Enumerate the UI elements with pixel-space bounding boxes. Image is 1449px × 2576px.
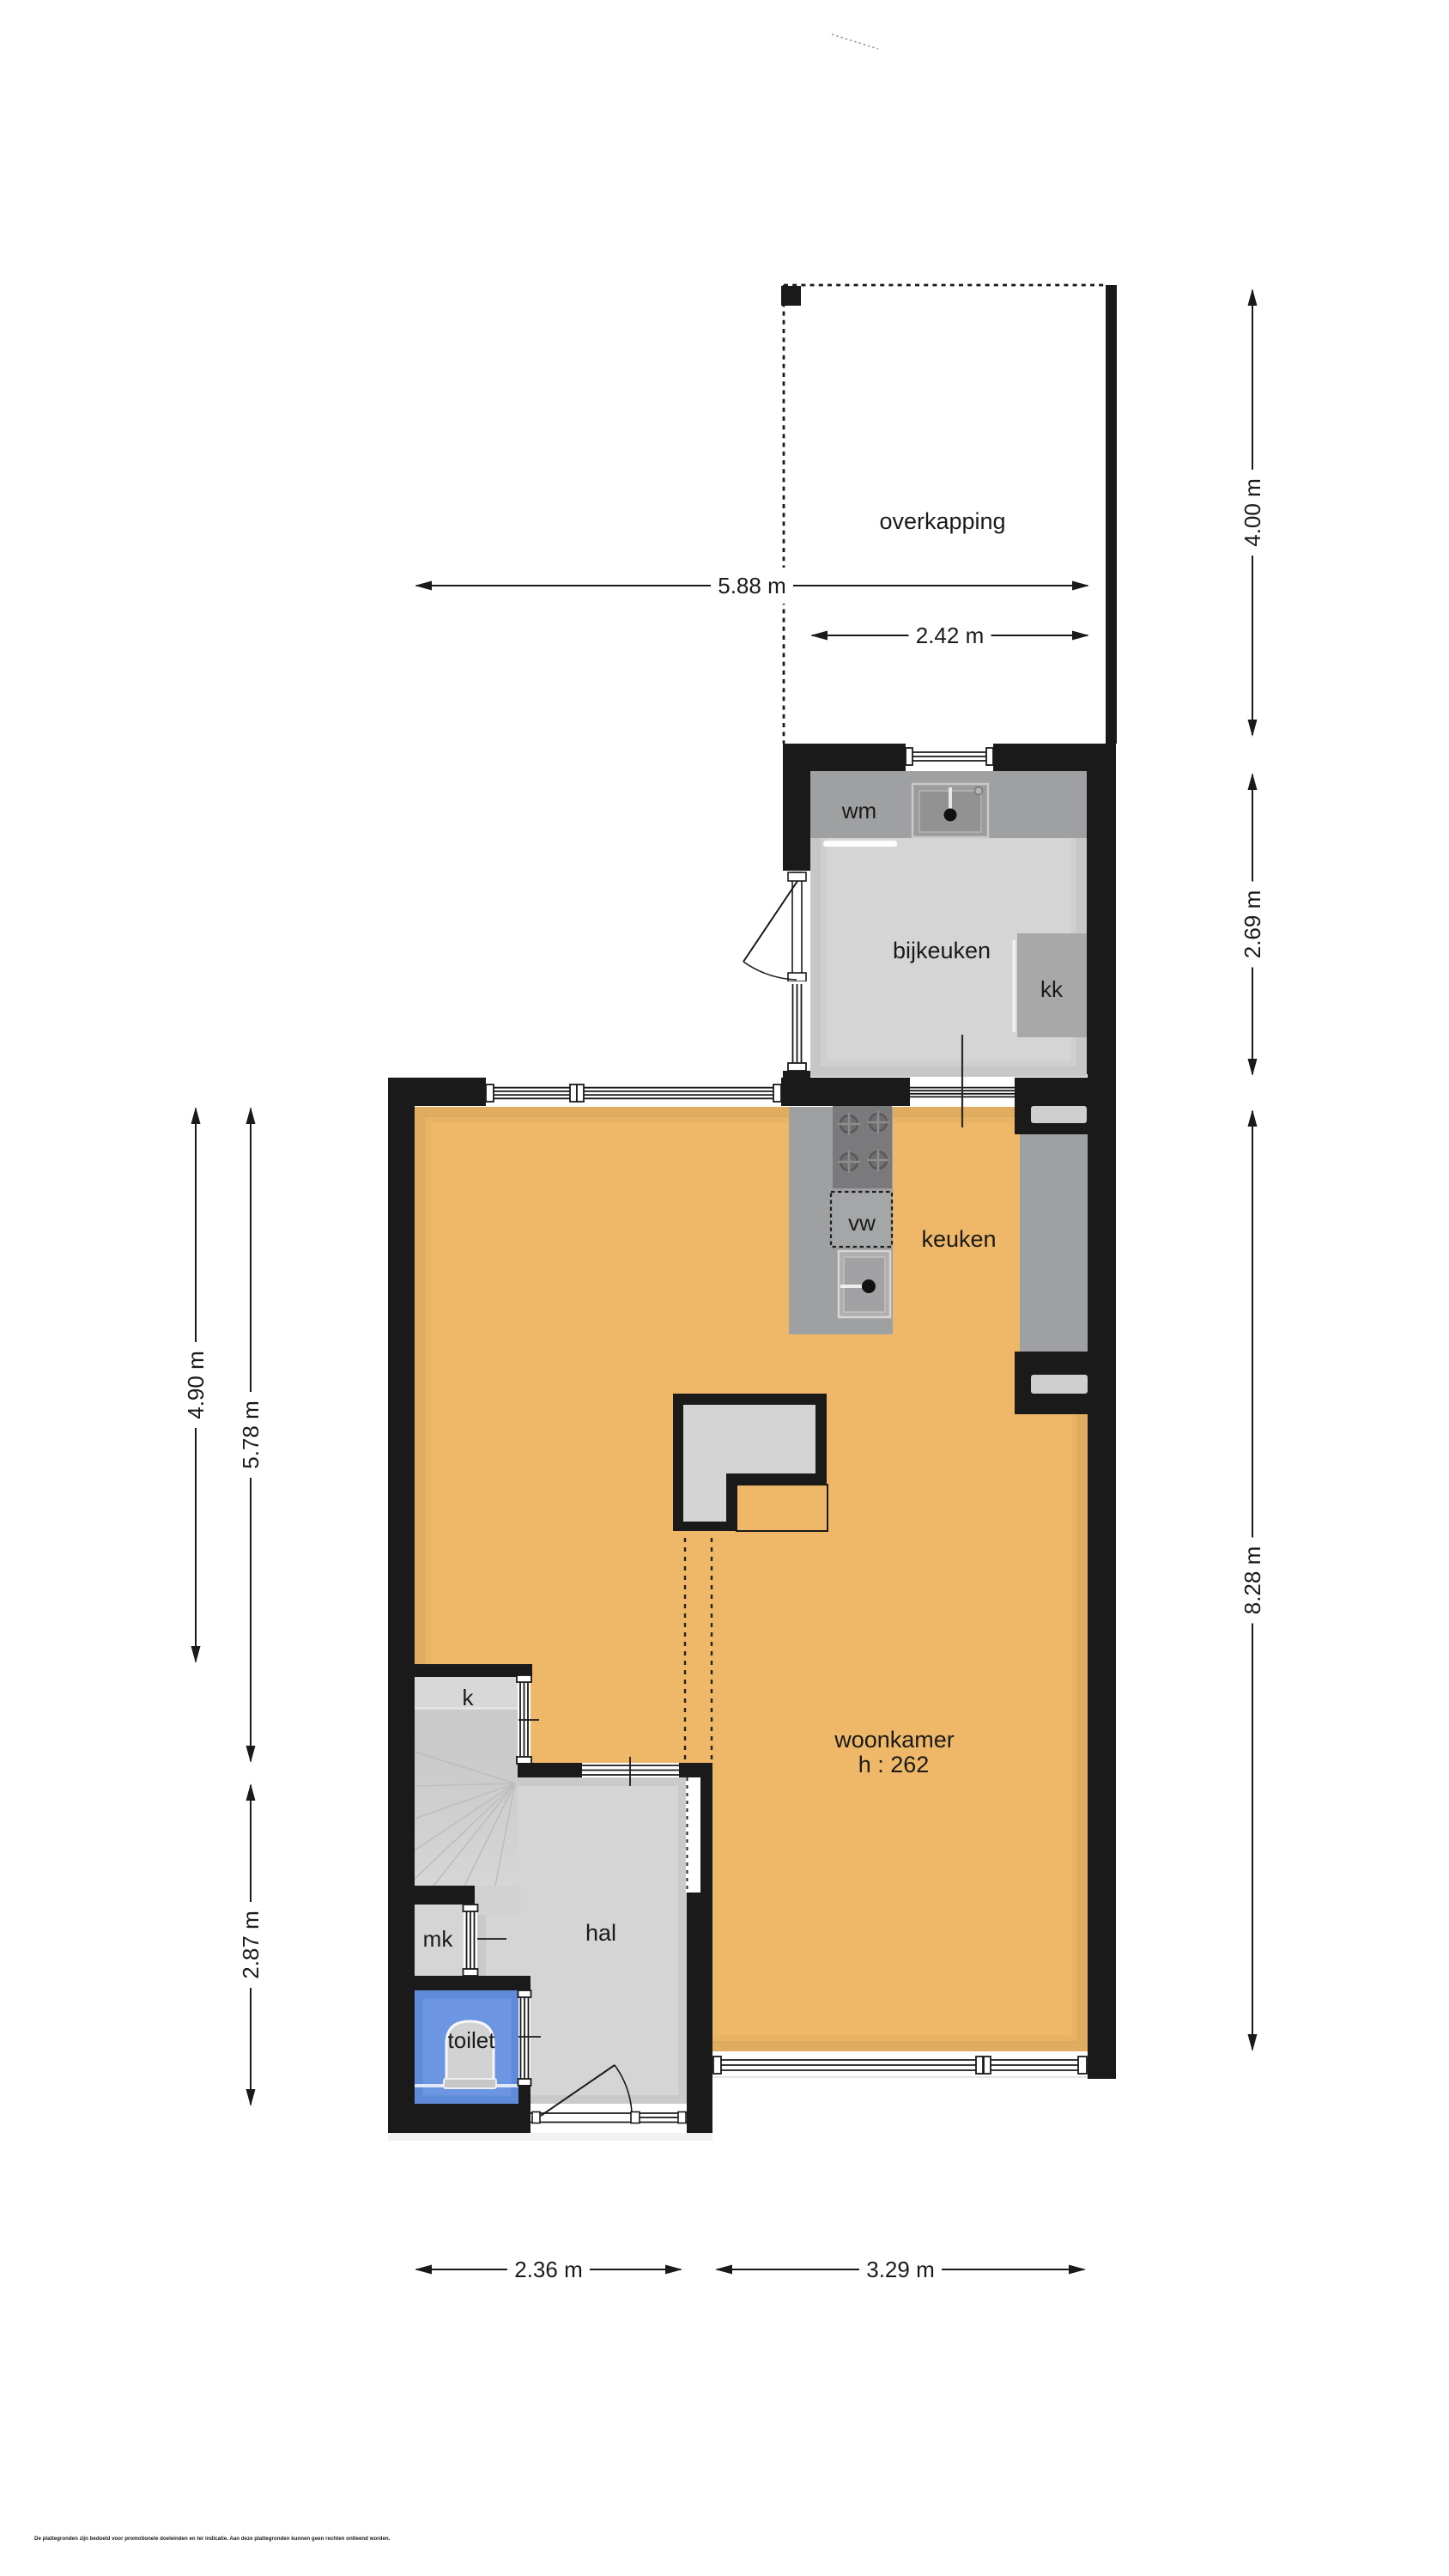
svg-text:4.00 m: 4.00 m [1240, 478, 1265, 547]
svg-text:k: k [463, 1685, 475, 1710]
svg-text:2.36 m: 2.36 m [514, 2257, 583, 2282]
svg-text:hal: hal [585, 1920, 616, 1946]
svg-text:overkapping: overkapping [879, 508, 1005, 534]
svg-text:h : 262: h : 262 [858, 1752, 930, 1777]
svg-text:2.42 m: 2.42 m [916, 623, 985, 648]
svg-text:3.29 m: 3.29 m [866, 2257, 935, 2282]
svg-text:vw: vw [848, 1210, 876, 1236]
svg-text:5.78 m: 5.78 m [238, 1400, 264, 1469]
svg-text:8.28 m: 8.28 m [1240, 1546, 1265, 1615]
svg-text:toilet: toilet [448, 2027, 496, 2053]
svg-text:kk: kk [1040, 976, 1064, 1002]
svg-text:wm: wm [841, 798, 876, 823]
svg-text:woonkamer: woonkamer [834, 1727, 955, 1753]
svg-text:De plattegronden zijn bedoeld: De plattegronden zijn bedoeld voor promo… [34, 2536, 391, 2542]
svg-text:2.69 m: 2.69 m [1240, 890, 1265, 959]
svg-text:2.87 m: 2.87 m [238, 1911, 264, 1979]
svg-text:keuken: keuken [921, 1226, 996, 1252]
svg-text:5.88 m: 5.88 m [718, 573, 786, 598]
svg-text:bijkeuken: bijkeuken [893, 938, 991, 963]
svg-text:mk: mk [423, 1926, 454, 1952]
svg-text:4.90 m: 4.90 m [183, 1351, 209, 1419]
